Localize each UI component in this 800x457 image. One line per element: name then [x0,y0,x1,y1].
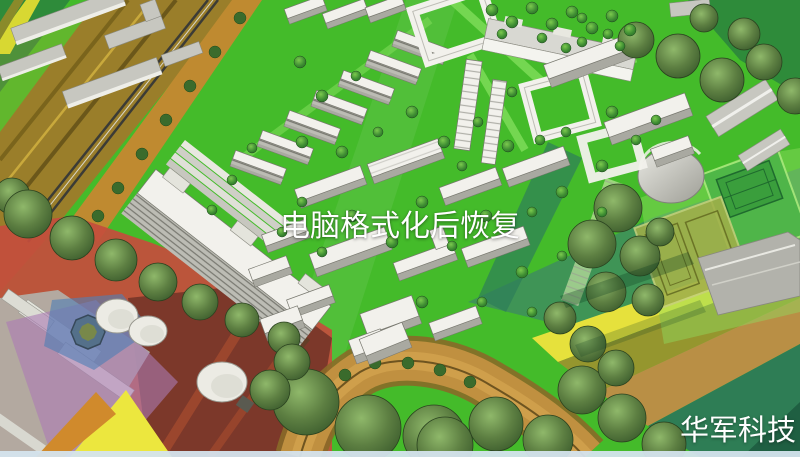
bottom-edge-strip [0,451,800,457]
hero-image: 电脑格式化后恢复 华军科技 [0,0,800,457]
masterplan-illustration [0,0,800,457]
